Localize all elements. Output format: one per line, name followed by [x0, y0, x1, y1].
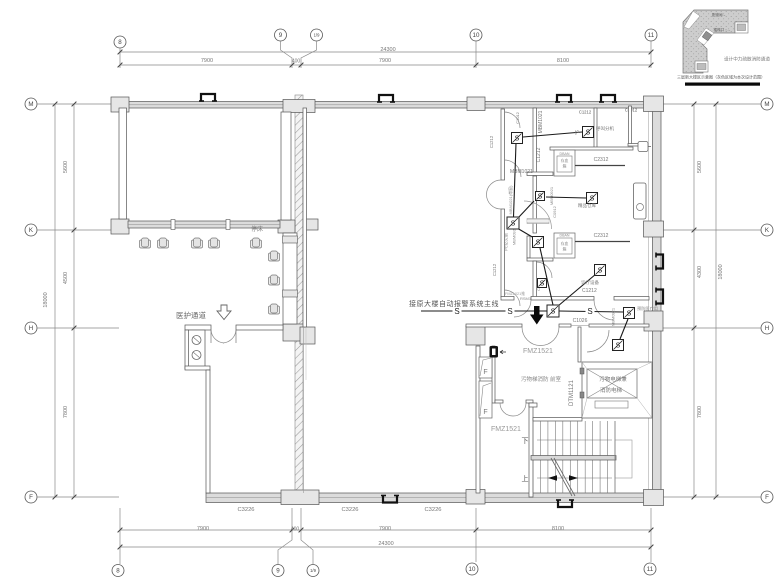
svg-text:污物梯消防 前室: 污物梯消防 前室 — [521, 375, 562, 383]
svg-text:4500: 4500 — [63, 272, 69, 284]
svg-text:C3226: C3226 — [341, 507, 358, 513]
svg-text:C1212: C1212 — [536, 147, 542, 162]
svg-text:24300: 24300 — [380, 47, 395, 53]
svg-text:H: H — [29, 325, 33, 332]
svg-text:C1212: C1212 — [489, 135, 494, 148]
svg-text:8100: 8100 — [557, 58, 569, 64]
svg-text:7900: 7900 — [379, 58, 391, 64]
svg-text:10: 10 — [473, 32, 480, 39]
svg-text:S: S — [507, 307, 512, 316]
svg-text:18000: 18000 — [718, 264, 724, 279]
svg-text:S: S — [586, 130, 591, 137]
svg-text:MBM1021: MBM1021 — [538, 110, 544, 133]
svg-text:400: 400 — [292, 59, 301, 65]
svg-text:楼梯口 ↑→: 楼梯口 ↑→ — [714, 27, 731, 32]
svg-text:S: S — [511, 221, 516, 228]
svg-text:DTM1121: DTM1121 — [569, 379, 575, 406]
svg-text:24300: 24300 — [378, 541, 393, 547]
svg-text:F: F — [29, 494, 33, 501]
svg-text:存血: 存血 — [561, 241, 569, 246]
svg-text:S: S — [538, 194, 543, 201]
svg-text:S: S — [598, 268, 603, 275]
svg-text:S: S — [536, 240, 541, 247]
svg-text:配电间→: 配电间→ — [712, 12, 726, 17]
svg-text:消防电梯: 消防电梯 — [600, 386, 623, 394]
svg-text:上: 上 — [522, 474, 529, 483]
svg-text:5600: 5600 — [63, 161, 69, 173]
svg-text:S: S — [551, 309, 556, 316]
svg-text:S: S — [454, 307, 459, 316]
svg-text:预防医疗用: 预防医疗用 — [637, 305, 658, 312]
svg-text:8100: 8100 — [552, 526, 564, 532]
svg-text:5600: 5600 — [697, 161, 703, 173]
svg-text:F: F — [765, 494, 769, 501]
svg-text:FMZ1521: FMZ1521 — [491, 426, 521, 433]
svg-text:9: 9 — [276, 568, 280, 575]
svg-text:MBM1021(帯窗): MBM1021(帯窗) — [507, 185, 513, 215]
svg-text:S: S — [616, 343, 621, 350]
svg-text:10: 10 — [469, 566, 476, 573]
svg-text:MBM0921: MBM0921 — [611, 307, 616, 326]
svg-text:8: 8 — [118, 39, 122, 46]
svg-text:11: 11 — [647, 566, 654, 573]
svg-text:M: M — [764, 101, 769, 108]
svg-text:三层新大楼区示意图（灰色区域为本次设计范围）: 三层新大楼区示意图（灰色区域为本次设计范围） — [677, 74, 765, 80]
svg-text:11: 11 — [648, 32, 655, 39]
svg-text:精品仓库: 精品仓库 — [578, 202, 596, 209]
svg-text:7900: 7900 — [379, 526, 391, 532]
svg-text:7900: 7900 — [197, 526, 209, 532]
svg-text:FMZ1521: FMZ1521 — [523, 348, 553, 355]
svg-text:MBM0921: MBM0921 — [549, 186, 554, 205]
svg-text:诊疗设备: 诊疗设备 — [581, 279, 599, 286]
svg-text:存血: 存血 — [561, 158, 569, 163]
svg-text:7800: 7800 — [63, 406, 69, 418]
svg-text:C1026: C1026 — [573, 318, 588, 324]
svg-text:DBAN: DBAN — [560, 152, 570, 156]
svg-text:S: S — [587, 307, 592, 316]
svg-text:停床: 停床 — [251, 225, 263, 233]
svg-text:4300: 4300 — [697, 266, 703, 278]
svg-text:MBM1021: MBM1021 — [510, 169, 533, 175]
svg-text:呼叫分机: 呼叫分机 — [596, 125, 614, 132]
svg-text:F: F — [483, 409, 487, 416]
svg-text:1/9: 1/9 — [310, 568, 316, 573]
svg-text:C3226: C3226 — [424, 507, 441, 513]
svg-text:C1212: C1212 — [579, 110, 592, 115]
svg-text:C0912: C0912 — [552, 205, 557, 218]
svg-text:S: S — [540, 281, 545, 288]
svg-text:S: S — [590, 196, 595, 203]
svg-text:设计中力疏散消防通道: 设计中力疏散消防通道 — [724, 56, 770, 63]
svg-text:PC防火閘: PC防火閘 — [503, 233, 509, 251]
svg-text:污物电梯兼: 污物电梯兼 — [599, 375, 627, 383]
svg-text:7800: 7800 — [697, 406, 703, 418]
svg-text:M: M — [28, 101, 33, 108]
svg-text:H: H — [765, 325, 769, 332]
svg-text:C3226: C3226 — [237, 507, 254, 513]
svg-text:F: F — [483, 369, 487, 376]
svg-text:1/9: 1/9 — [314, 33, 320, 38]
svg-text:接原大楼自动报警系统主线: 接原大楼自动报警系统主线 — [409, 299, 499, 308]
svg-text:DBAN: DBAN — [560, 234, 570, 238]
svg-text:C1012: C1012 — [515, 111, 520, 124]
svg-text:400: 400 — [291, 527, 300, 533]
svg-text:18000: 18000 — [43, 292, 49, 307]
svg-text:FMZ1021推: FMZ1021推 — [505, 291, 525, 296]
svg-text:9: 9 — [279, 32, 283, 39]
svg-text:下: 下 — [522, 437, 529, 445]
svg-text:C1212: C1212 — [582, 288, 597, 294]
svg-text:医护通道: 医护通道 — [176, 310, 206, 320]
svg-text:箱: 箱 — [563, 247, 567, 252]
svg-text:C2312: C2312 — [594, 157, 609, 163]
svg-text:C1212: C1212 — [492, 263, 497, 276]
svg-text:S: S — [627, 311, 632, 318]
svg-text:护: 护 — [575, 129, 580, 136]
svg-text:8: 8 — [116, 568, 120, 575]
svg-text:7900: 7900 — [201, 58, 213, 64]
svg-text:C2312: C2312 — [594, 233, 609, 239]
svg-text:箱: 箱 — [563, 164, 567, 169]
svg-text:S: S — [515, 136, 520, 143]
